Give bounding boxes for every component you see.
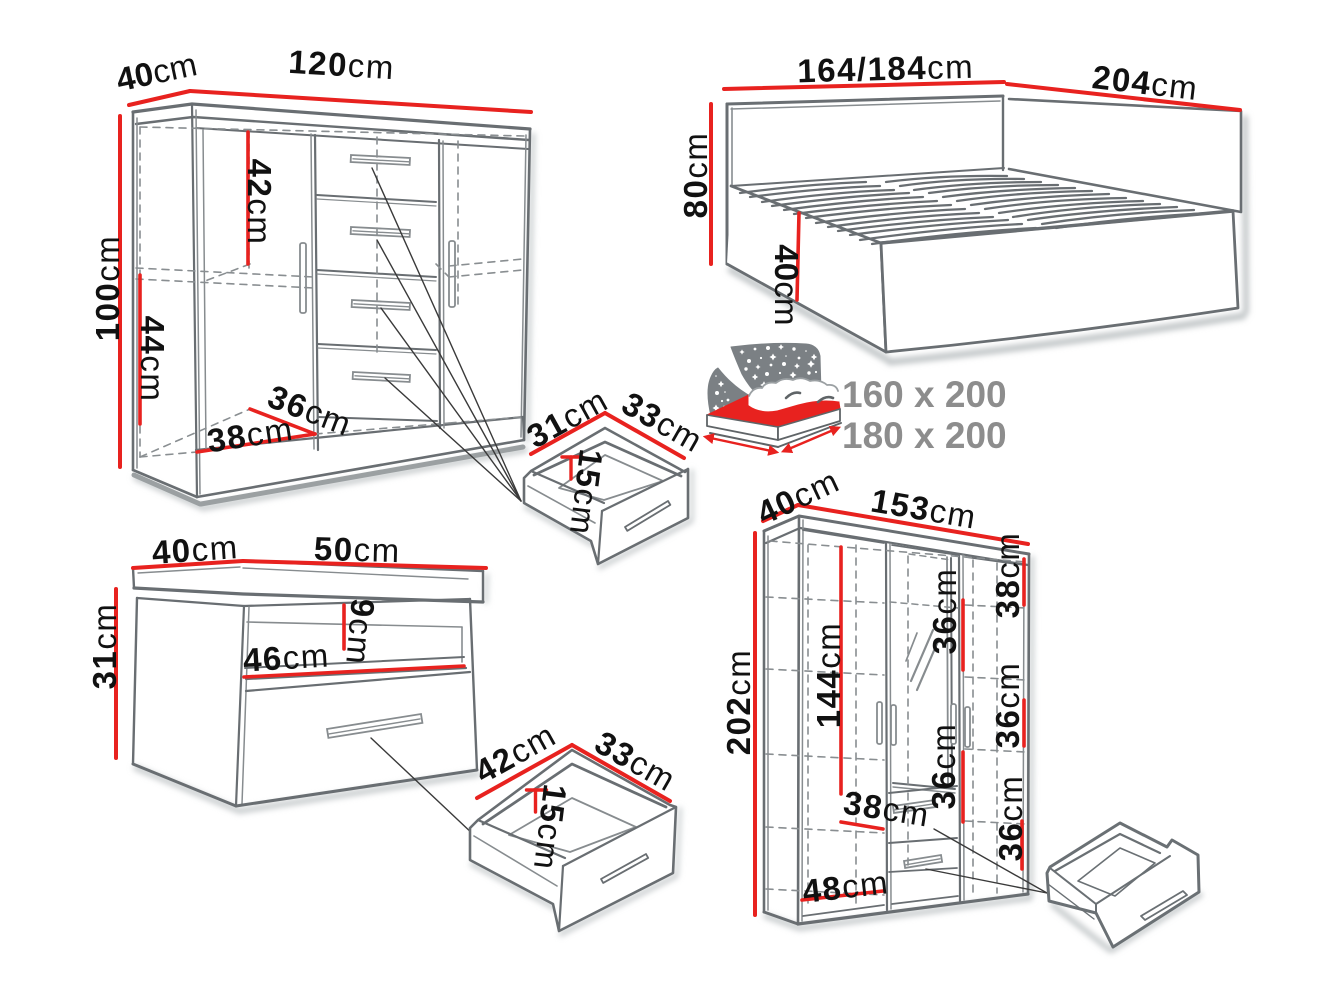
- svg-text:40cm: 40cm: [151, 528, 240, 571]
- svg-text:202cm: 202cm: [720, 649, 757, 756]
- svg-text:50cm: 50cm: [313, 530, 401, 569]
- svg-text:9cm: 9cm: [339, 597, 382, 667]
- svg-text:36cm: 36cm: [992, 775, 1029, 862]
- svg-text:160 x 200: 160 x 200: [842, 374, 1007, 415]
- svg-text:164/184cm: 164/184cm: [797, 48, 975, 90]
- svg-text:31cm: 31cm: [86, 603, 123, 690]
- svg-text:80cm: 80cm: [677, 132, 714, 219]
- svg-text:42cm: 42cm: [241, 159, 278, 246]
- svg-text:44cm: 44cm: [134, 316, 171, 403]
- svg-text:36cm: 36cm: [925, 723, 962, 810]
- svg-text:120cm: 120cm: [287, 43, 396, 86]
- svg-text:36cm: 36cm: [989, 662, 1026, 749]
- svg-text:38cm: 38cm: [989, 532, 1026, 619]
- svg-text:100cm: 100cm: [89, 235, 126, 342]
- svg-text:180 x 200: 180 x 200: [842, 415, 1007, 456]
- svg-text:46cm: 46cm: [242, 636, 331, 678]
- svg-text:36cm: 36cm: [926, 568, 963, 655]
- svg-text:40cm: 40cm: [768, 244, 805, 326]
- svg-text:144cm: 144cm: [810, 622, 847, 729]
